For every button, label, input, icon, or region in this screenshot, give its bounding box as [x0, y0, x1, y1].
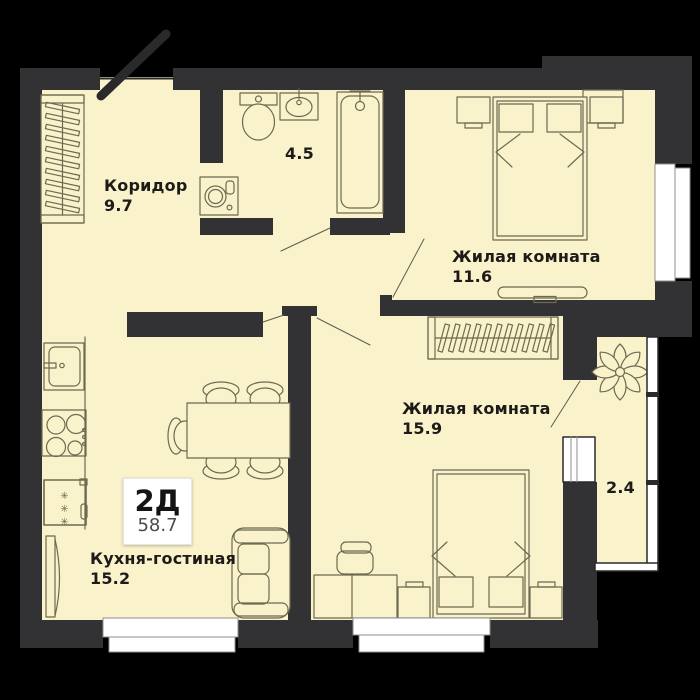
window-kitchen — [103, 618, 238, 652]
stool-icon — [337, 542, 373, 574]
entrance-door-icon — [100, 34, 173, 96]
wardrobe-hangers-icon — [41, 95, 84, 223]
wardrobe-hangers-icon — [428, 317, 558, 359]
room-area: 15.9 — [402, 419, 551, 439]
double-bed-icon — [493, 97, 587, 240]
toilet-icon — [240, 93, 277, 140]
room-label-corridor: Коридор 9.7 — [104, 176, 188, 215]
room-area: 9.7 — [104, 196, 188, 216]
room-label-living-room-2: Жилая комната 15.9 — [402, 399, 551, 438]
snowflake-icon: ✳ — [60, 491, 68, 502]
room-area: 4.5 — [285, 144, 314, 164]
room-area: 2.4 — [606, 478, 635, 498]
double-bed-icon — [432, 470, 530, 618]
stove-icon — [42, 410, 86, 457]
snowflake-icon: ✳ — [60, 517, 68, 528]
room-label-bathroom: 4.5 — [285, 144, 314, 164]
window-bedroom1 — [655, 164, 690, 281]
floorplan-art: ✳ ✳ ✳ — [0, 0, 700, 700]
radiator-icon — [46, 536, 60, 617]
room-area: 11.6 — [452, 267, 601, 287]
bath-sink-icon — [280, 89, 318, 120]
room-label-balcony: 2.4 — [606, 478, 635, 498]
room-area: 15.2 — [90, 569, 236, 589]
floorplan-canvas: ✳ ✳ ✳ — [0, 0, 700, 700]
balcony-door-window — [563, 437, 595, 482]
snowflake-icon: ✳ — [60, 504, 68, 515]
dining-table-icon — [187, 403, 290, 458]
fridge-icon: ✳ ✳ ✳ — [44, 479, 87, 528]
washing-machine-icon — [200, 177, 238, 215]
bathtub-icon — [337, 91, 383, 213]
unit-info-card: 2Д 58.7 — [123, 478, 192, 545]
sofa-icon — [232, 528, 290, 618]
window-bedroom2 — [353, 618, 490, 652]
unit-total-area: 58.7 — [137, 516, 177, 537]
room-label-living-room-1: Жилая комната 11.6 — [452, 247, 601, 286]
vent-shaft-icon — [583, 90, 623, 123]
kitchen-sink-icon — [44, 343, 84, 390]
room-name: Жилая комната — [402, 399, 551, 419]
plant-icon — [592, 344, 648, 400]
room-name: Жилая комната — [452, 247, 601, 267]
room-name: Коридор — [104, 176, 188, 196]
desk-icon — [314, 575, 397, 618]
unit-type-label: 2Д — [134, 487, 180, 516]
room-label-kitchen-living: Кухня-гостиная 15.2 — [90, 549, 236, 588]
tv-console-icon — [498, 287, 587, 303]
room-name: Кухня-гостиная — [90, 549, 236, 569]
